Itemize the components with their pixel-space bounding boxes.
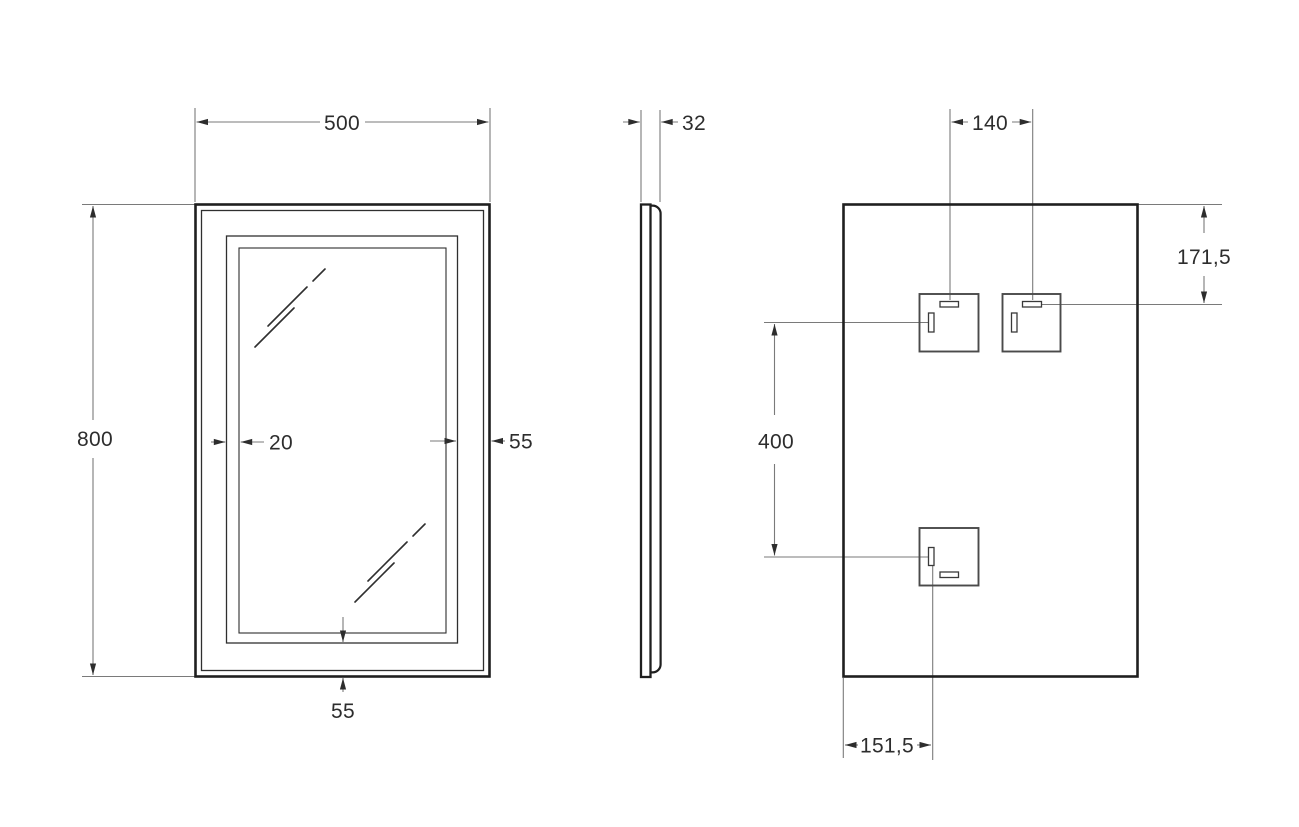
bracket-slot-vertical <box>1012 313 1018 332</box>
technical-drawing-canvas: 500 800 20 55 55 32 140 171,5 400 151,5 <box>0 0 1299 827</box>
mounting-bracket-bottom <box>920 528 979 586</box>
glass-shine-mark-bottom <box>355 524 425 602</box>
side-profile-glass <box>641 205 651 678</box>
dim-right-margin-label: 55 <box>509 431 533 454</box>
dim-top-offset-label: 171,5 <box>1177 246 1231 269</box>
bracket-slot-horizontal <box>1023 302 1042 308</box>
bracket-slot-vertical <box>929 548 935 566</box>
bracket-slot-vertical <box>929 313 935 332</box>
mounting-bracket-top-left <box>920 294 979 352</box>
dim-front-width-label: 500 <box>324 112 360 135</box>
side-profile-housing <box>651 206 661 673</box>
dim-depth-label: 32 <box>682 112 706 135</box>
mounting-bracket-top-right <box>1003 294 1061 352</box>
dimension-labels: 500 800 20 55 55 32 140 171,5 400 151,5 <box>77 112 1231 758</box>
dim-bottom-left-offset-label: 151,5 <box>860 735 914 758</box>
dim-led-inset-label: 20 <box>269 432 293 455</box>
mirror-drawing-svg: 500 800 20 55 55 32 140 171,5 400 151,5 <box>0 0 1299 827</box>
bracket-slot-horizontal <box>940 572 959 578</box>
front-led-channel-outer <box>227 236 458 643</box>
dim-bracket-span-label: 400 <box>758 431 794 454</box>
dim-front-height-label: 800 <box>77 428 113 451</box>
back-view <box>844 205 1138 677</box>
side-view <box>641 205 661 678</box>
bracket-slot-horizontal <box>940 302 959 308</box>
dim-bracket-spacing-label: 140 <box>972 112 1008 135</box>
back-panel <box>844 205 1138 677</box>
glass-shine-mark-top <box>255 269 325 347</box>
dim-bottom-margin-label: 55 <box>331 700 355 723</box>
